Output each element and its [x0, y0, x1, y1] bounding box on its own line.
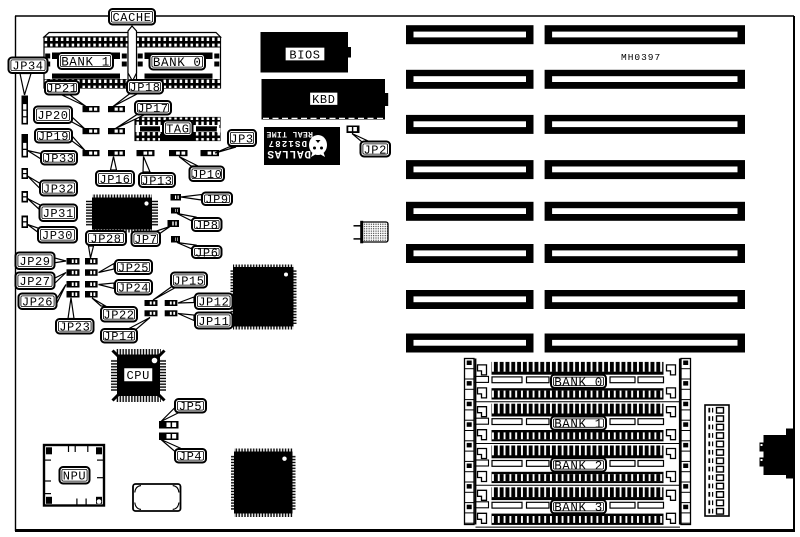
svg-text:JP17: JP17 — [137, 102, 168, 116]
svg-text:BIOS: BIOS — [289, 48, 320, 62]
svg-text:JP8: JP8 — [195, 219, 218, 233]
svg-text:CACHE: CACHE — [112, 11, 151, 25]
svg-text:BANK 1: BANK 1 — [61, 56, 110, 70]
svg-text:JP26: JP26 — [22, 296, 53, 310]
svg-text:JP19: JP19 — [38, 130, 69, 144]
svg-text:CPU: CPU — [126, 369, 149, 383]
svg-text:JP7: JP7 — [134, 233, 157, 247]
svg-text:JP28: JP28 — [90, 232, 121, 246]
svg-text:JP5: JP5 — [179, 400, 202, 414]
svg-text:JP22: JP22 — [103, 309, 134, 323]
svg-text:JP32: JP32 — [43, 182, 74, 196]
svg-text:JP6: JP6 — [195, 246, 218, 260]
svg-text:BANK 2: BANK 2 — [554, 459, 603, 473]
svg-text:REAL TIME: REAL TIME — [266, 129, 313, 138]
svg-text:JP13: JP13 — [141, 174, 172, 188]
svg-text:BANK 0: BANK 0 — [153, 56, 202, 70]
svg-text:TAG: TAG — [166, 123, 189, 137]
svg-text:JP31: JP31 — [43, 207, 74, 221]
svg-text:BANK 1: BANK 1 — [554, 418, 603, 432]
svg-text:JP34: JP34 — [12, 60, 43, 74]
svg-text:JP9: JP9 — [205, 193, 228, 207]
svg-text:JP15: JP15 — [173, 274, 204, 288]
svg-text:JP12: JP12 — [198, 296, 229, 310]
svg-text:JP23: JP23 — [59, 321, 90, 335]
svg-text:JP18: JP18 — [129, 81, 160, 95]
svg-text:JP33: JP33 — [43, 152, 74, 166]
svg-text:JP16: JP16 — [99, 173, 130, 187]
svg-text:BANK 3: BANK 3 — [554, 501, 603, 515]
svg-text:JP30: JP30 — [42, 229, 73, 243]
svg-text:JP4: JP4 — [179, 450, 202, 464]
svg-text:JP10: JP10 — [191, 168, 222, 182]
svg-text:MH0397: MH0397 — [621, 52, 661, 63]
svg-text:JP25: JP25 — [118, 261, 149, 275]
svg-text:JP11: JP11 — [198, 315, 229, 329]
svg-text:JP2: JP2 — [363, 143, 386, 157]
svg-text:JP29: JP29 — [19, 255, 50, 269]
svg-text:JP27: JP27 — [19, 275, 50, 289]
svg-text:JP20: JP20 — [37, 109, 68, 123]
svg-text:NPU: NPU — [63, 470, 86, 484]
svg-text:KBD: KBD — [312, 93, 335, 107]
svg-text:DS1287: DS1287 — [267, 138, 307, 148]
svg-text:BANK 0: BANK 0 — [554, 376, 603, 390]
svg-text:JP3: JP3 — [230, 132, 253, 146]
svg-text:JP21: JP21 — [46, 82, 77, 96]
svg-text:JP14: JP14 — [103, 330, 134, 344]
svg-text:JP24: JP24 — [118, 282, 149, 296]
